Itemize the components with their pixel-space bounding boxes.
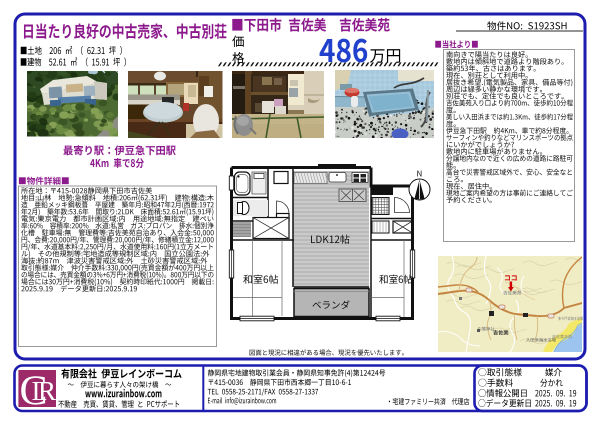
svg-text:R: R (38, 376, 56, 406)
